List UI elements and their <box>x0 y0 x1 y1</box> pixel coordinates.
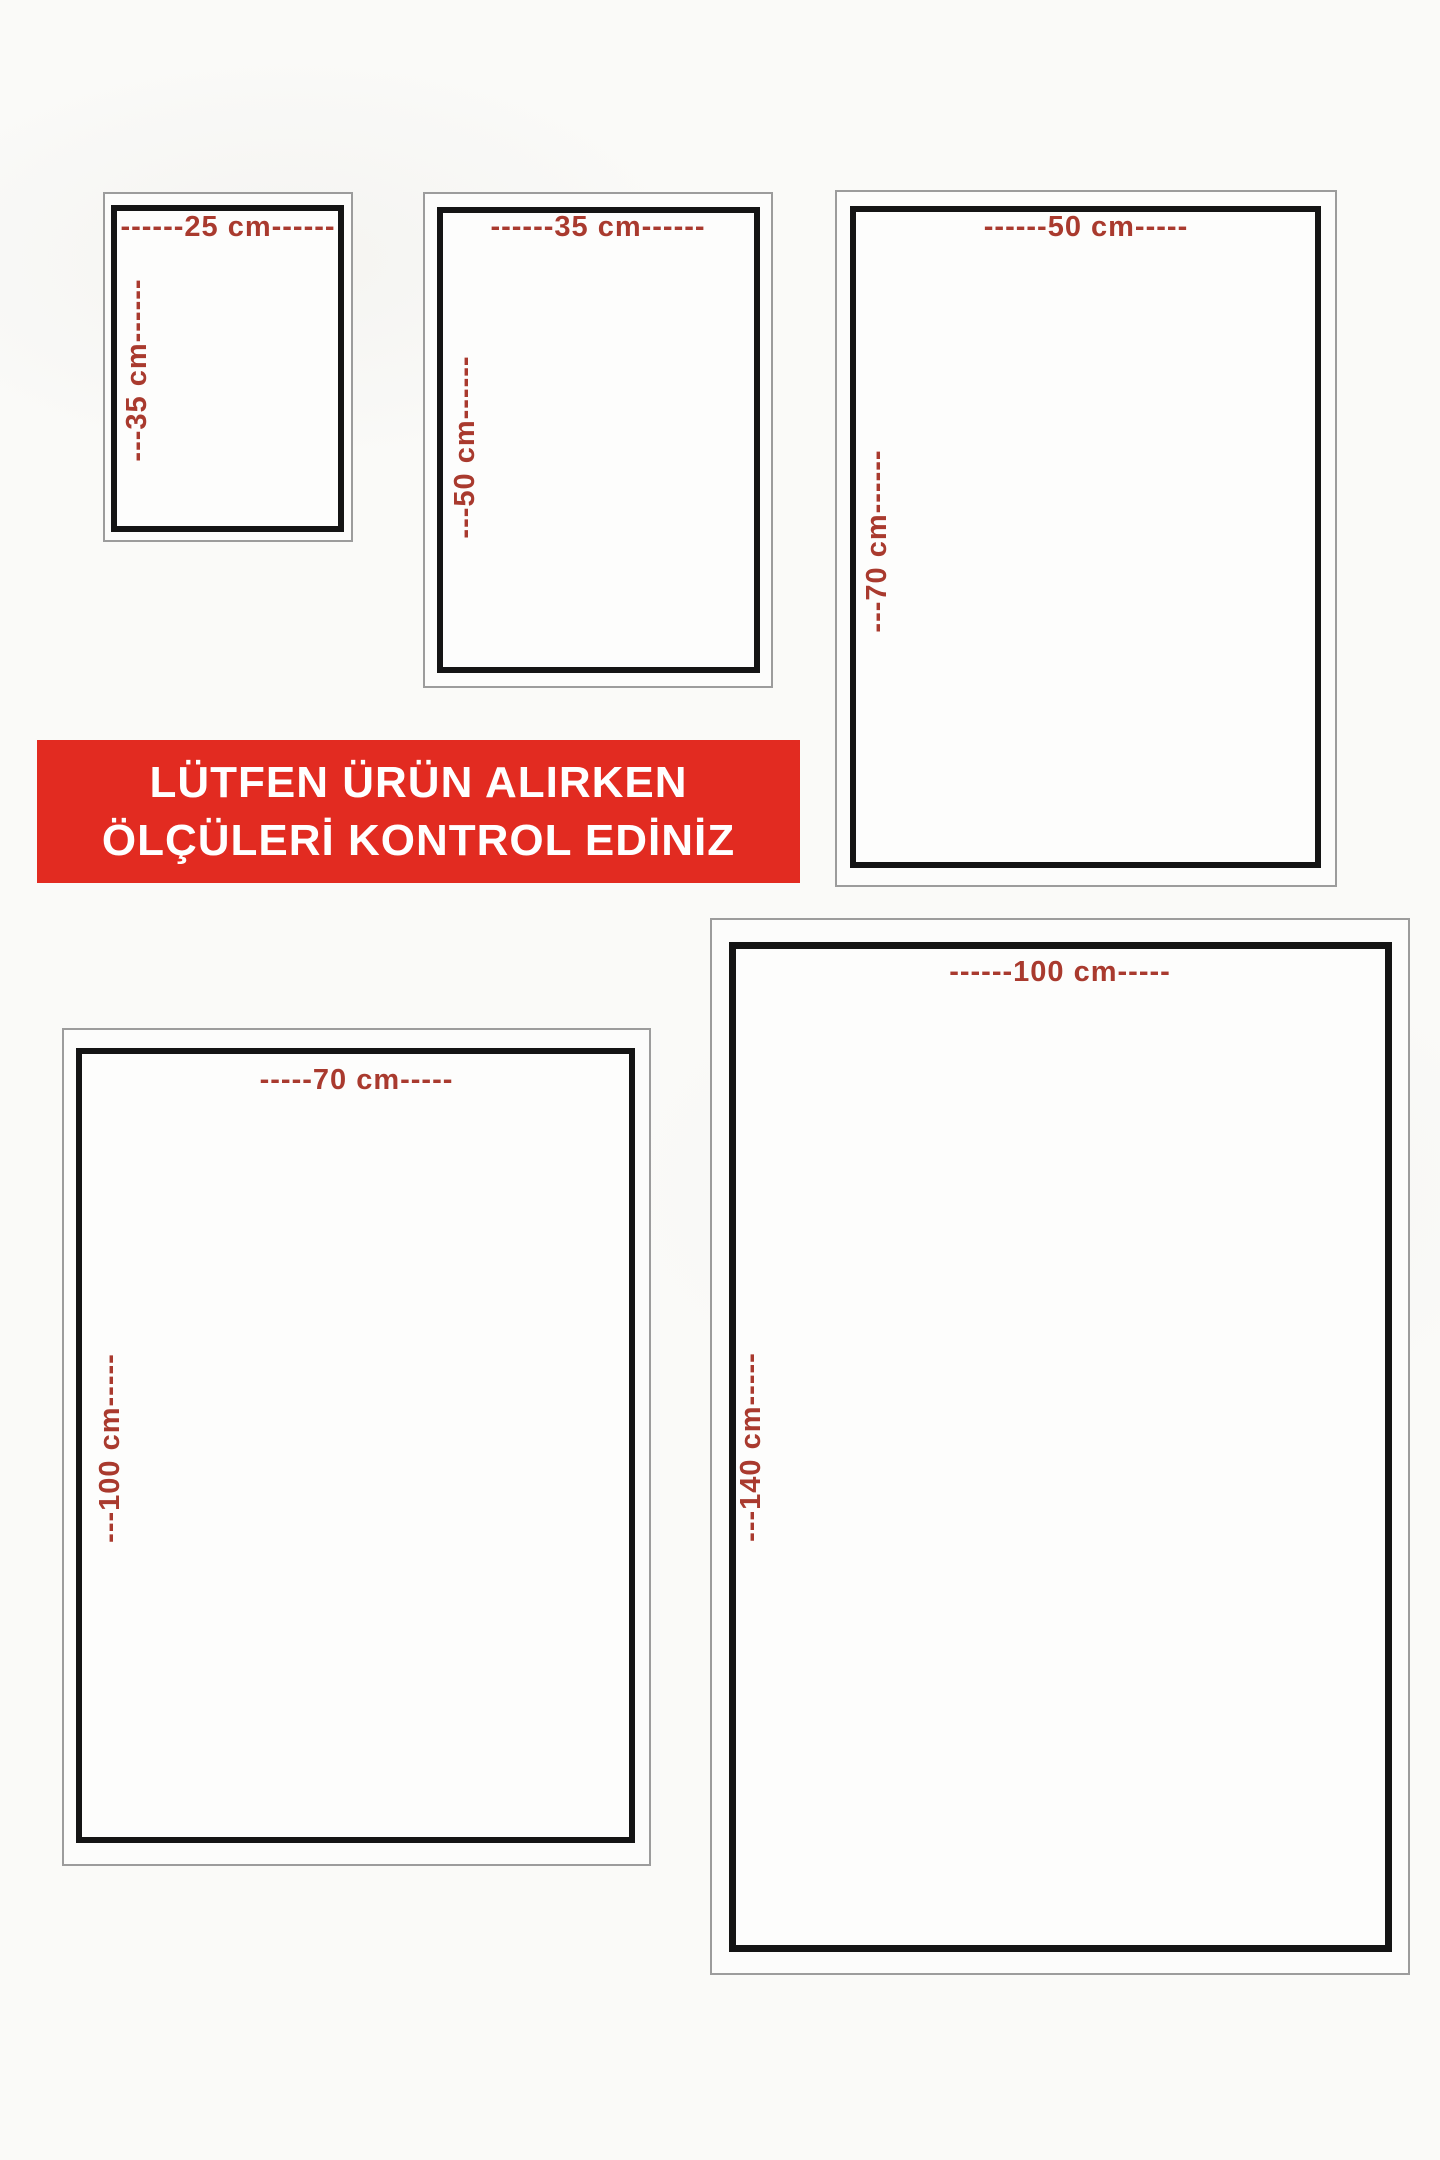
size-box-100x140: ------100 cm----- ---140 cm----- <box>710 918 1410 1975</box>
size-box-50x70: ------50 cm----- ---70 cm------ <box>835 190 1337 887</box>
notice-banner: LÜTFEN ÜRÜN ALIRKEN ÖLÇÜLERİ KONTROL EDİ… <box>37 740 800 883</box>
size-box-70x100-frame <box>76 1048 635 1843</box>
height-label-50cm: ---50 cm------ <box>450 355 480 538</box>
size-box-25x35: ------25 cm------ ---35 cm------ <box>103 192 353 542</box>
size-box-35x50: ------35 cm------ ---50 cm------ <box>423 192 773 688</box>
height-label-35cm: ---35 cm------ <box>122 278 152 461</box>
size-chart: ------25 cm------ ---35 cm------ ------3… <box>0 0 1440 2160</box>
width-label-100cm: ------100 cm----- <box>949 957 1171 987</box>
size-box-100x140-frame <box>729 942 1392 1952</box>
width-label-50cm: ------50 cm----- <box>984 212 1188 242</box>
size-box-70x100: -----70 cm----- ---100 cm----- <box>62 1028 651 1866</box>
notice-banner-line-2: ÖLÇÜLERİ KONTROL EDİNİZ <box>102 812 735 870</box>
height-label-70cm: ---70 cm------ <box>862 449 892 632</box>
width-label-70cm: -----70 cm----- <box>260 1065 454 1095</box>
height-label-100cm: ---100 cm----- <box>95 1353 125 1543</box>
notice-banner-line-1: LÜTFEN ÜRÜN ALIRKEN <box>150 754 688 812</box>
width-label-25cm: ------25 cm------ <box>120 212 335 242</box>
size-box-50x70-frame <box>850 206 1321 868</box>
height-label-140cm: ---140 cm----- <box>736 1352 766 1542</box>
size-box-35x50-frame <box>437 207 760 673</box>
width-label-35cm: ------35 cm------ <box>490 212 705 242</box>
